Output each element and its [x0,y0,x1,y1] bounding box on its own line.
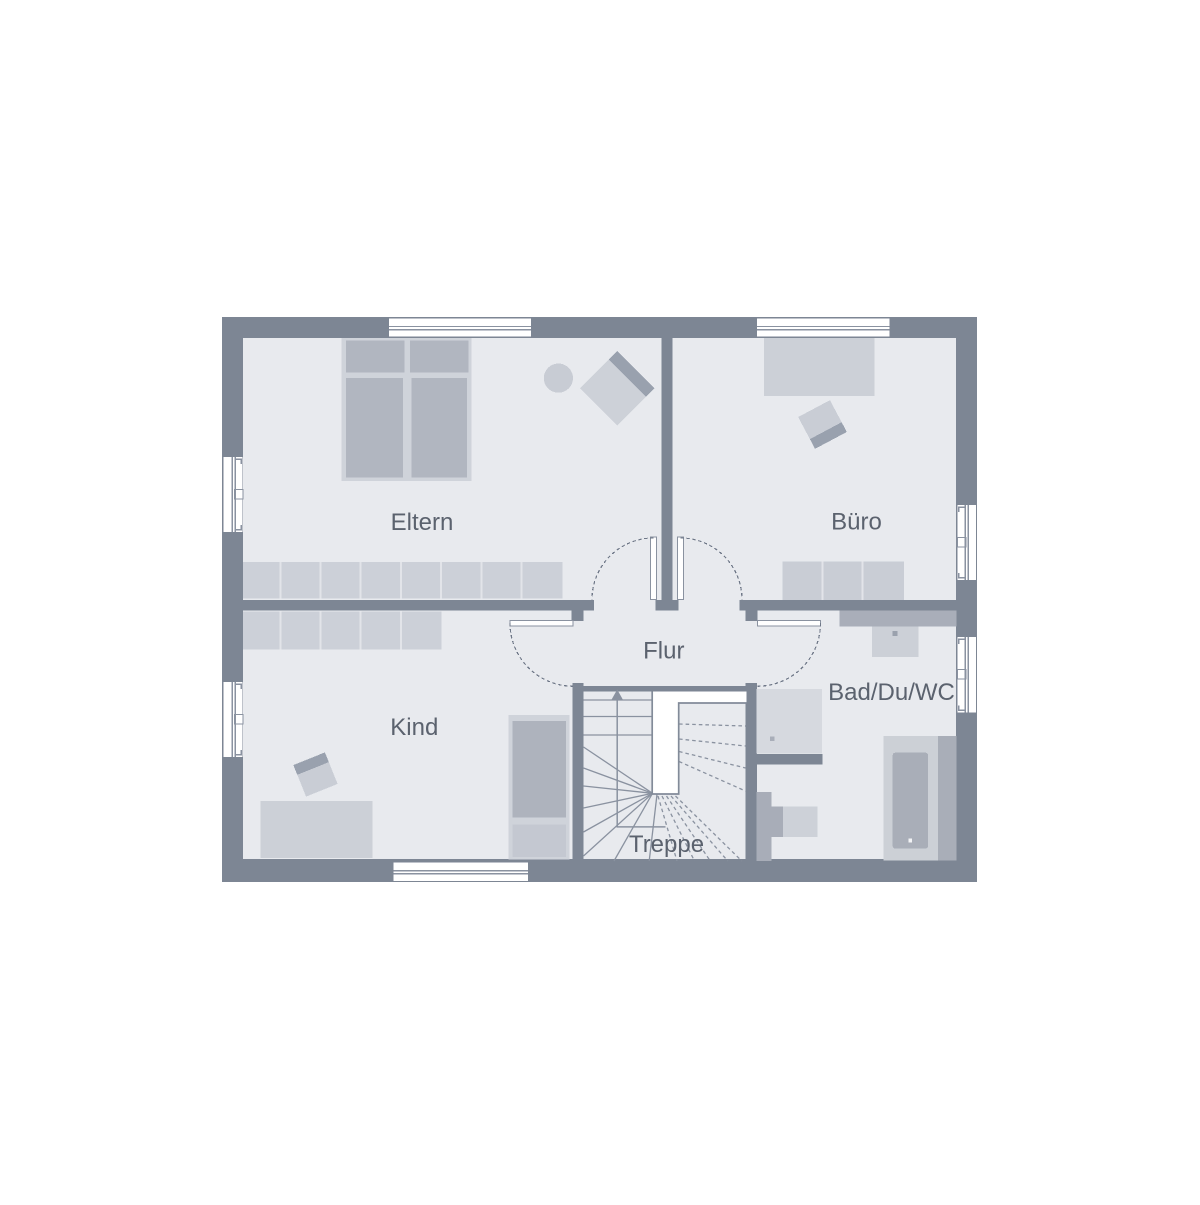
svg-text:Flur: Flur [643,638,684,665]
svg-text:Bad/Du/WC: Bad/Du/WC [828,679,955,706]
svg-text:Büro: Büro [831,509,882,536]
svg-text:Eltern: Eltern [391,509,454,536]
svg-text:Treppe: Treppe [629,831,704,858]
svg-text:Kind: Kind [390,714,438,741]
